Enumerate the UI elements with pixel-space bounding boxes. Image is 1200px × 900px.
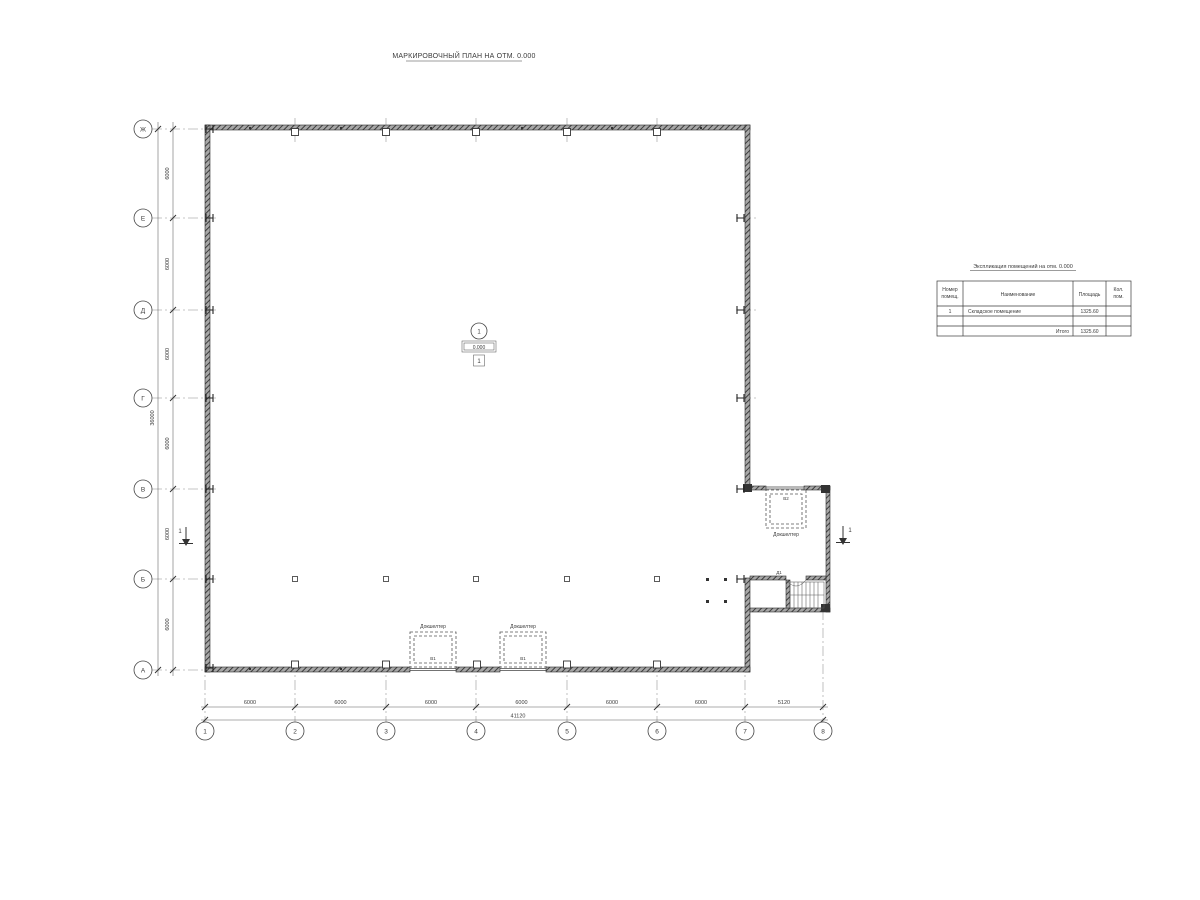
bottom-dimension-labels: 6000 6000 6000 6000 6000 6000 5120 41120 — [244, 700, 790, 720]
axis-col-2: 2 — [293, 729, 297, 736]
axis-row-zh: Ж — [140, 127, 146, 134]
dock-shelter-left: Докшелтер В1 — [410, 624, 456, 667]
floor-plan-drawing: МАРКИРОВОЧНЫЙ ПЛАН НА ОТМ. 0.000 — [0, 0, 1200, 900]
table-title: Экспликация помещений на отм. 0.000 — [973, 263, 1073, 270]
axis-col-8: 8 — [821, 729, 825, 736]
svg-text:6000: 6000 — [165, 437, 171, 449]
annex-wall-bottom — [750, 608, 830, 612]
annex-corner-column-2 — [821, 485, 830, 493]
svg-text:6000: 6000 — [165, 618, 171, 630]
svg-text:6000: 6000 — [695, 700, 707, 706]
dock-shelter-right: Докшелтер В1 — [500, 624, 546, 667]
plan-title: МАРКИРОВОЧНЫЙ ПЛАН НА ОТМ. 0.000 — [392, 51, 535, 61]
explication-table: Экспликация помещений на отм. 0.000 Номе… — [937, 263, 1131, 336]
section-mark-left: 1 — [178, 527, 193, 546]
vestibule-wall-1 — [750, 576, 786, 580]
cell-room-number: 1 — [949, 309, 952, 315]
column-beam-r-g — [737, 394, 744, 402]
wall-bottom-3 — [546, 667, 750, 672]
axis-row-a: А — [141, 668, 146, 675]
svg-text:6000: 6000 — [165, 258, 171, 270]
left-total-dimension: 36000 — [150, 410, 156, 425]
vestibule-wall-2 — [806, 576, 826, 580]
plan-title-text: МАРКИРОВОЧНЫЙ ПЛАН НА ОТМ. 0.000 — [392, 51, 535, 60]
left-dimension-labels: 6000 6000 6000 6000 6000 6000 36000 — [150, 167, 171, 630]
column-beam-r-v — [737, 485, 744, 493]
svg-text:6000: 6000 — [165, 348, 171, 360]
dock-shelter-annex-label: Докшелтер — [773, 532, 799, 538]
wall-right-lower — [745, 578, 750, 672]
cell-room-name: Складское помещение — [968, 309, 1021, 315]
table-header-num-1: Номер — [942, 287, 958, 293]
drawing-sheet: МАРКИРОВОЧНЫЙ ПЛАН НА ОТМ. 0.000 — [0, 0, 1200, 900]
svg-text:6000: 6000 — [425, 700, 437, 706]
svg-text:6000: 6000 — [244, 700, 256, 706]
bottom-total-dimension: 41120 — [511, 714, 526, 720]
svg-text:6000: 6000 — [515, 700, 527, 706]
section-mark-right-number: 1 — [848, 528, 852, 534]
room-marks: 1 0.000 1 — [462, 323, 496, 366]
annex-wall-right — [826, 486, 830, 612]
vestibule-partition — [786, 580, 790, 608]
axis-col-6: 6 — [655, 729, 659, 736]
dock-shelter-annex: В2 Докшелтер — [766, 490, 806, 538]
table-header-num-2: помещ. — [941, 294, 958, 300]
axis-col-7: 7 — [743, 729, 747, 736]
svg-text:6000: 6000 — [334, 700, 346, 706]
grid-lines — [152, 118, 823, 724]
svg-text:6000: 6000 — [606, 700, 618, 706]
axis-row-g: Г — [141, 396, 145, 403]
gate-mark-v2: В2 — [783, 496, 789, 501]
section-mark-right: 1 — [836, 526, 852, 545]
svg-text:6000: 6000 — [165, 167, 171, 179]
table-header-area: Площадь — [1079, 292, 1101, 298]
wall-bottom-1 — [205, 667, 410, 672]
axis-col-3: 3 — [384, 729, 388, 736]
gate-mark-v1-right: В1 — [520, 656, 526, 661]
wall-right-upper — [745, 125, 750, 490]
cell-total-label: Итого — [1056, 329, 1069, 335]
dock-shelter-right-label: Докшелтер — [510, 624, 536, 630]
axis-row-d: Д — [141, 308, 146, 315]
columns — [206, 125, 744, 672]
cell-total-area: 1325.60 — [1080, 329, 1098, 335]
door-mark-d1: Д1 — [776, 570, 782, 575]
axis-bubbles-rows: Ж Е Д Г В Б А — [134, 120, 152, 679]
column-beam-r-b — [737, 575, 744, 583]
section-mark-left-number: 1 — [178, 529, 182, 535]
axis-col-4: 4 — [474, 729, 478, 736]
table-header-name: Наименование — [1001, 292, 1036, 298]
annex-wall-top-1 — [750, 486, 766, 490]
axis-col-5: 5 — [565, 729, 569, 736]
gate-mark-v1-left: В1 — [430, 656, 436, 661]
axis-row-b: Б — [141, 577, 145, 584]
column-beam-r-d — [737, 306, 744, 314]
left-dimension-lines — [155, 122, 176, 676]
floor-type-text: 1 — [477, 359, 481, 365]
table-header-count-2: пом. — [1113, 294, 1123, 300]
dock-shelter-left-label: Докшелтер — [420, 624, 446, 630]
axis-row-e: Е — [141, 216, 146, 223]
table-header-count-1: Кол. — [1114, 287, 1124, 293]
svg-text:5120: 5120 — [778, 700, 790, 706]
axis-bubbles-cols: 1 2 3 4 5 6 7 8 — [196, 722, 832, 740]
table-total-row: Итого 1325.60 — [1056, 329, 1099, 335]
table-row: 1 Складское помещение 1325.60 — [949, 309, 1099, 315]
walls — [205, 125, 830, 672]
axis-col-1: 1 — [203, 729, 207, 736]
cell-room-area: 1325.60 — [1080, 309, 1098, 315]
column-beam-r-e — [737, 214, 744, 222]
level-mark-text: 0.000 — [473, 345, 486, 351]
svg-text:6000: 6000 — [165, 528, 171, 540]
axis-row-v: В — [141, 487, 145, 494]
